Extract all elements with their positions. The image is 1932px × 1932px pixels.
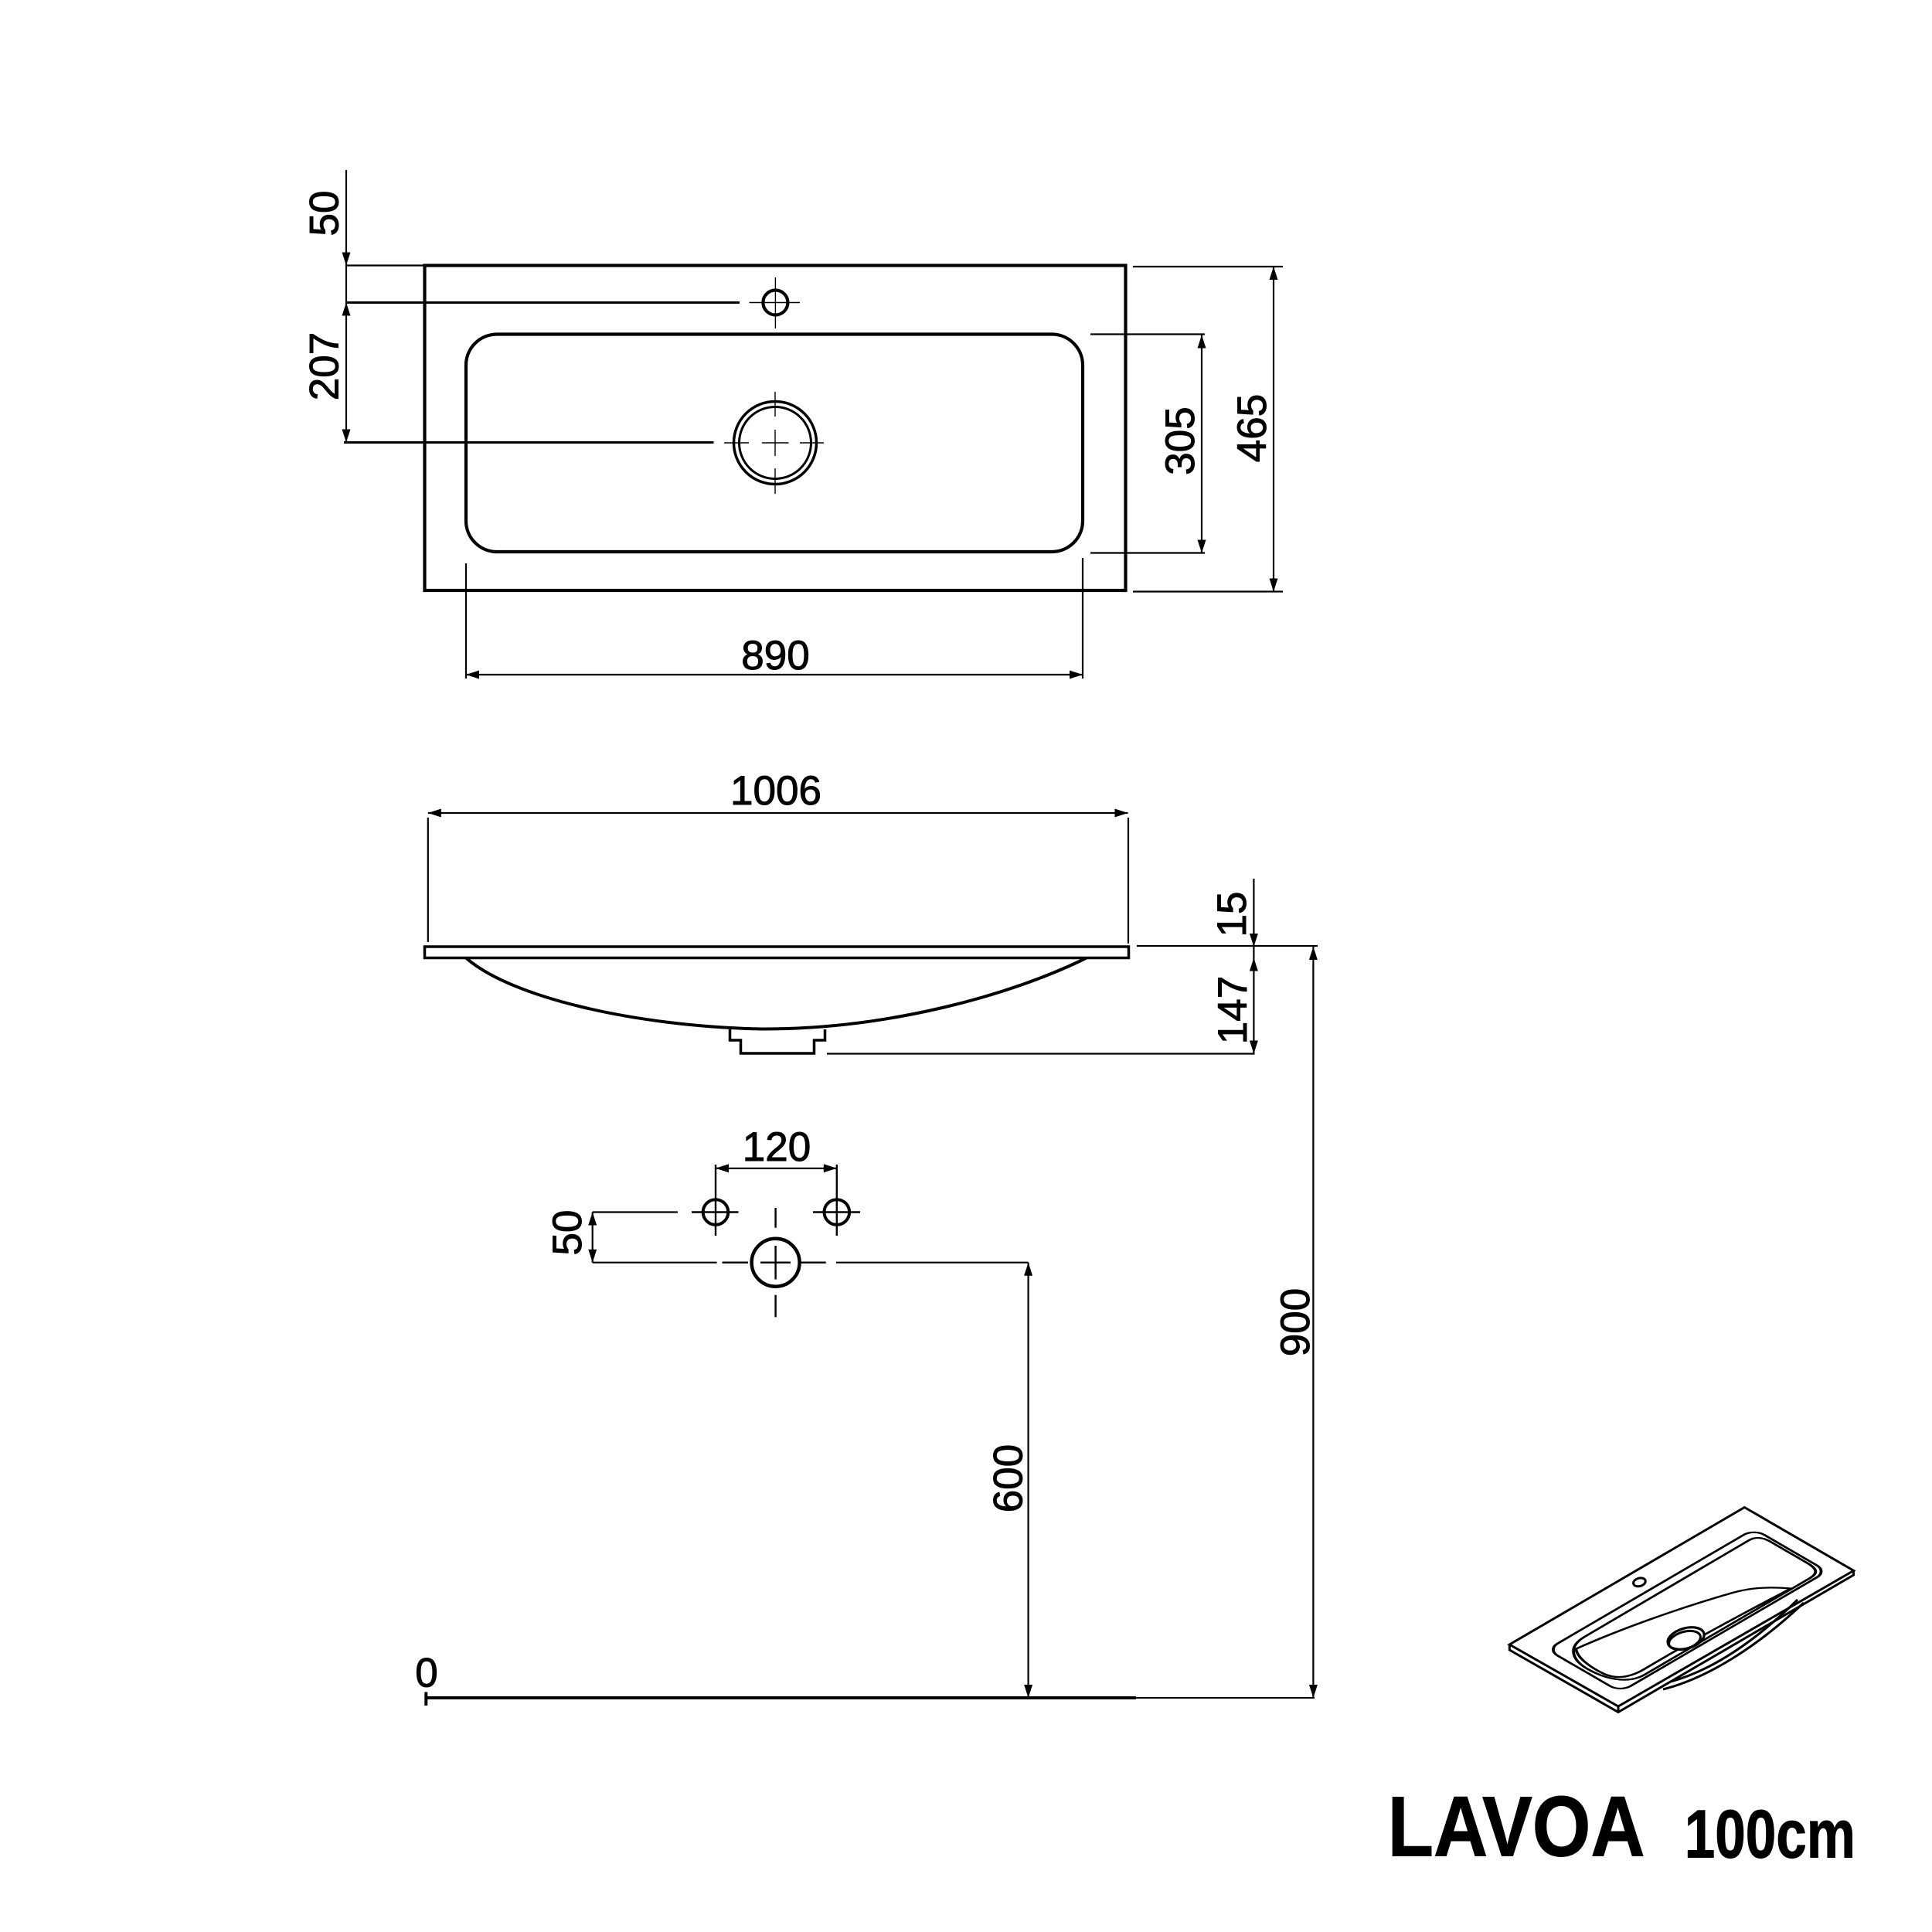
- svg-text:900: 900: [1273, 1288, 1318, 1356]
- svg-text:50: 50: [302, 191, 348, 236]
- svg-text:1006: 1006: [730, 768, 821, 814]
- svg-text:465: 465: [1230, 394, 1275, 462]
- svg-text:600: 600: [986, 1444, 1032, 1512]
- svg-text:15: 15: [1209, 892, 1255, 937]
- svg-text:890: 890: [741, 633, 809, 679]
- svg-text:50: 50: [545, 1210, 590, 1256]
- svg-text:305: 305: [1158, 406, 1203, 474]
- svg-text:147: 147: [1210, 976, 1256, 1044]
- svg-text:LAVOA: LAVOA: [1388, 1780, 1645, 1875]
- svg-text:100cm: 100cm: [1685, 1796, 1855, 1872]
- svg-text:120: 120: [743, 1124, 811, 1170]
- svg-text:0: 0: [415, 1651, 437, 1696]
- svg-text:207: 207: [302, 332, 348, 400]
